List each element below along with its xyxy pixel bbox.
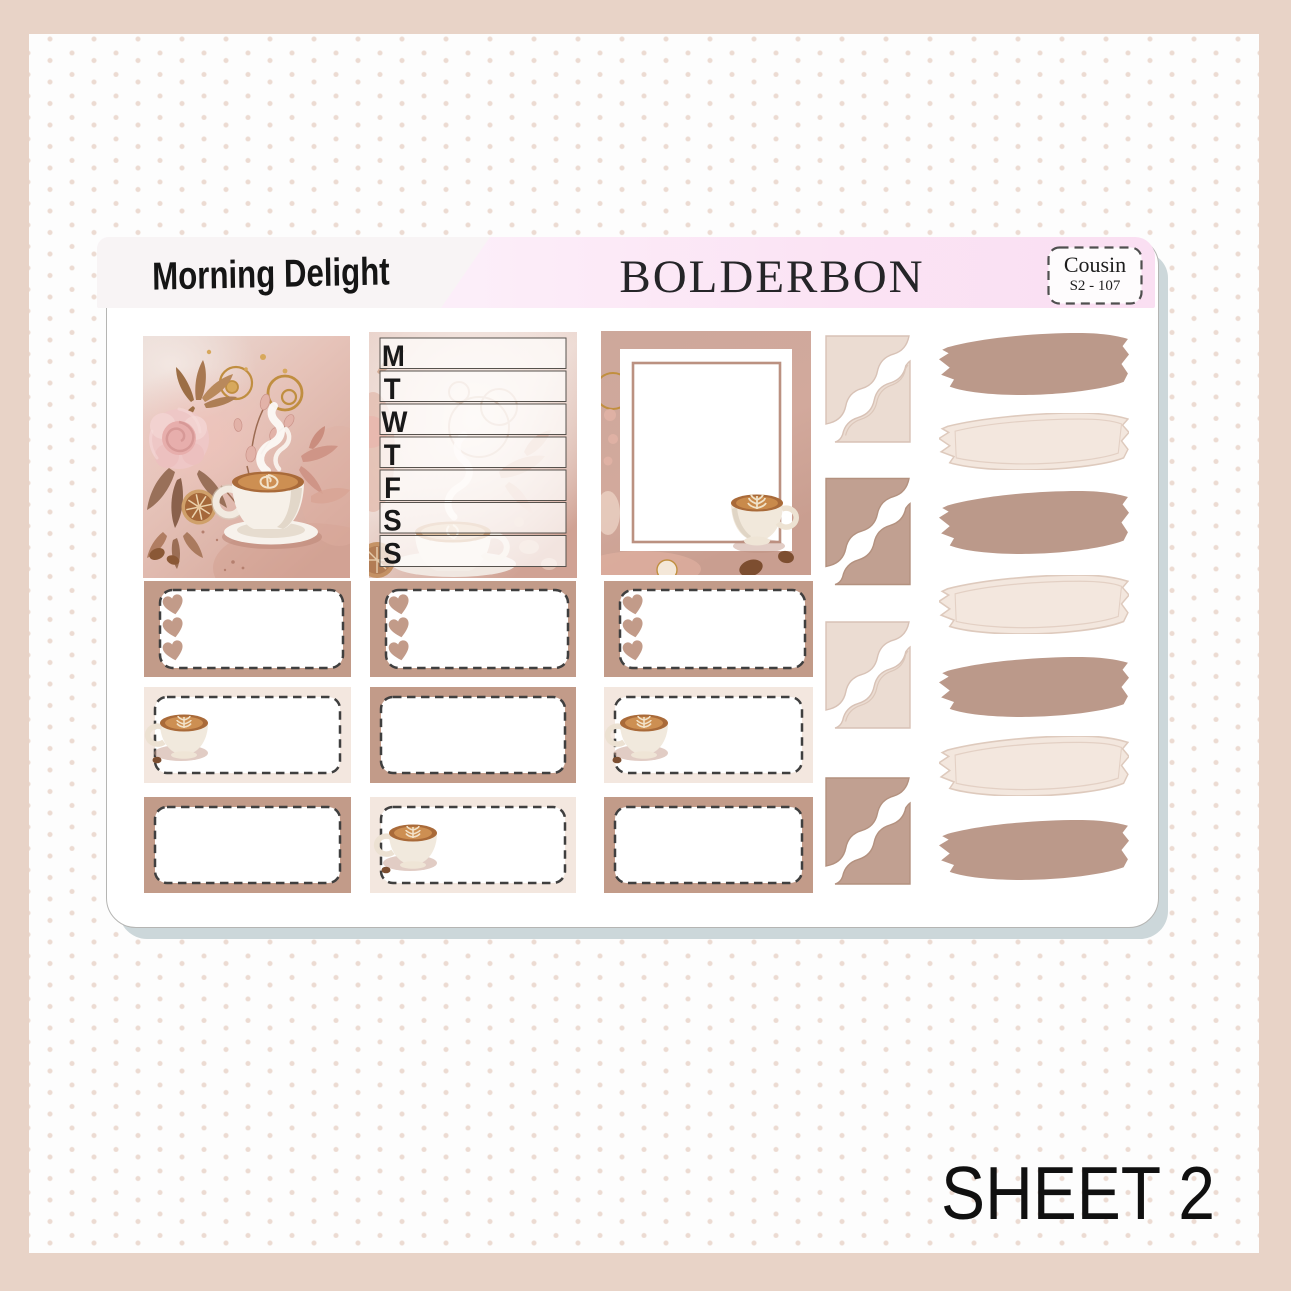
svg-text:M: M <box>382 340 405 373</box>
svg-text:T: T <box>384 373 401 406</box>
svg-text:S: S <box>383 537 401 570</box>
svg-text:W: W <box>381 406 408 439</box>
svg-text:S: S <box>383 504 401 537</box>
svg-text:T: T <box>384 439 401 472</box>
svg-text:F: F <box>384 472 401 505</box>
